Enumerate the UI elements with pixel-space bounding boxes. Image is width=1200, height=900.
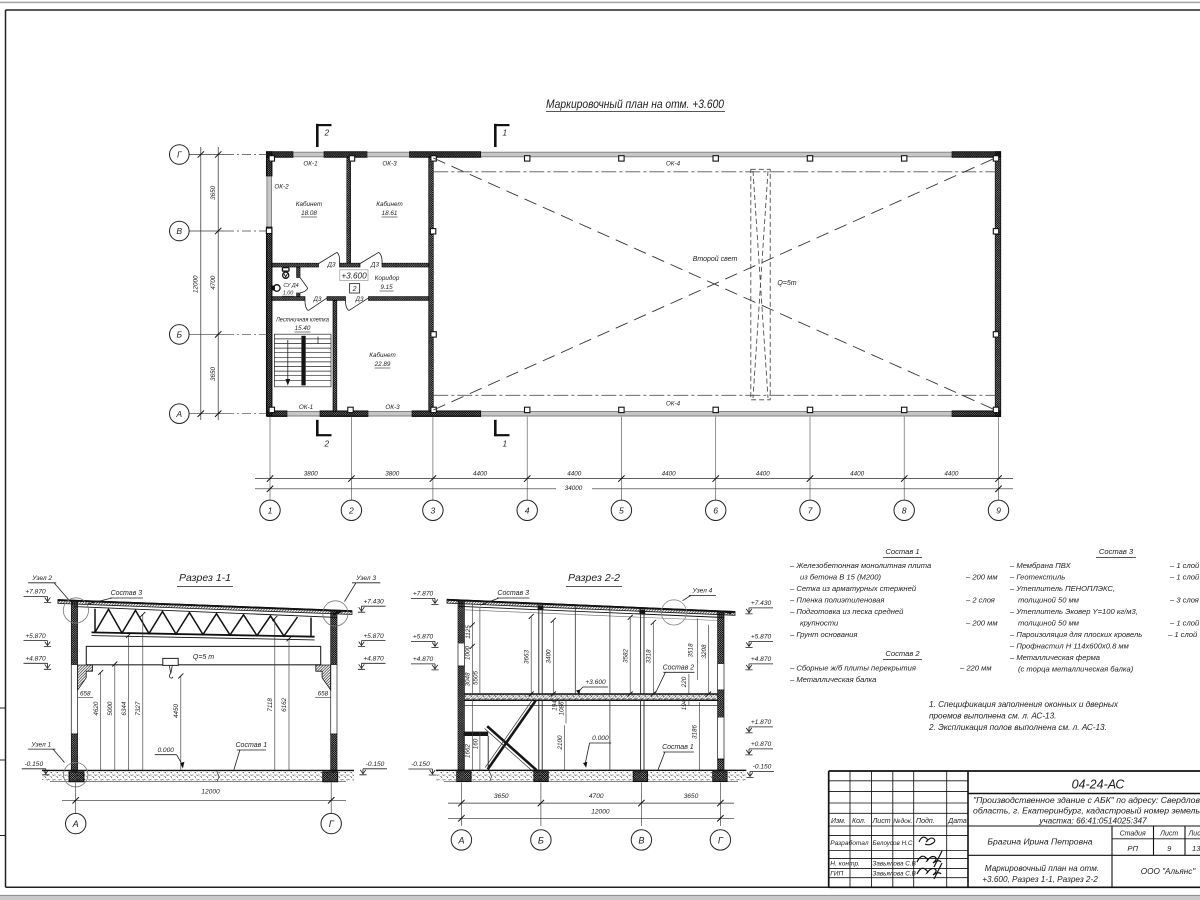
svg-text:Второй свет: Второй свет (693, 255, 738, 263)
svg-text:12000: 12000 (192, 275, 199, 293)
svg-text:ОК-1: ОК-1 (303, 161, 317, 168)
svg-text:– Железобетонная монолитная п: – Железобетонная монолитная плита (789, 561, 931, 570)
svg-text:Д3: Д3 (370, 261, 379, 268)
svg-text:194: 194 (681, 699, 688, 710)
svg-text:1.00: 1.00 (283, 291, 294, 297)
svg-text:– 2 слоя: – 2 слоя (965, 596, 995, 605)
svg-text:Д3: Д3 (313, 296, 322, 303)
svg-text:2100: 2100 (557, 735, 564, 751)
svg-text:СУ Д4: СУ Д4 (283, 283, 298, 289)
svg-text:– Мембрана ПВХ: – Мембрана ПВХ (1009, 561, 1072, 570)
svg-text:1662: 1662 (464, 744, 471, 759)
svg-text:5000: 5000 (107, 701, 114, 716)
svg-text:Изм.: Изм. (831, 818, 846, 825)
svg-text:2. Экспликация полов выполнена: 2. Экспликация полов выполнена см. л. АС… (928, 723, 1107, 732)
svg-text:– Сетка из арматурных стержней: – Сетка из арматурных стержней (789, 584, 917, 593)
svg-text:Подп.: Подп. (916, 817, 935, 825)
svg-text:проемов выполнена см. л. АС-13: проемов выполнена см. л. АС-13. (929, 712, 1056, 721)
svg-text:0.000: 0.000 (592, 735, 609, 742)
svg-text:– Утеплитель Эковер Y=100 кг/м: – Утеплитель Эковер Y=100 кг/м3, (1009, 607, 1138, 616)
svg-text:3: 3 (431, 506, 436, 516)
svg-text:– Сборные ж/б плиты перекрытия: – Сборные ж/б плиты перекрытия (789, 664, 916, 673)
svg-text:(с торца металлическая балка): (с торца металлическая балка) (1018, 665, 1134, 674)
svg-text:6: 6 (713, 506, 718, 516)
svg-text:– 1 слой: – 1 слой (1169, 573, 1200, 582)
svg-text:2: 2 (324, 129, 330, 138)
svg-text:2: 2 (324, 440, 330, 449)
svg-text:– 1 слой: – 1 слой (1169, 561, 1200, 570)
svg-text:Лист: Лист (872, 818, 891, 825)
svg-text:ГИП: ГИП (830, 870, 843, 877)
svg-text:+5.870: +5.870 (25, 633, 46, 640)
svg-text:3800: 3800 (304, 471, 319, 478)
svg-text:2: 2 (352, 286, 357, 293)
svg-text:5505: 5505 (473, 671, 480, 686)
svg-text:+4.870: +4.870 (751, 656, 772, 663)
svg-text:Кол.: Кол. (852, 818, 866, 825)
svg-text:В: В (638, 835, 644, 845)
svg-text:"Производственное здание с АБК: "Производственное здание с АБК" по адрес… (973, 796, 1200, 805)
svg-text:ОК-4: ОК-4 (666, 400, 681, 407)
svg-text:Состав 1: Состав 1 (662, 744, 694, 751)
svg-text:Н. контр.: Н. контр. (830, 861, 860, 868)
svg-text:Маркировочный план на отм.: Маркировочный план на отм. (985, 864, 1099, 873)
svg-text:4620: 4620 (93, 701, 100, 716)
svg-text:1000: 1000 (464, 646, 471, 661)
svg-text:Завьялова С.В: Завьялова С.В (873, 861, 916, 868)
svg-text:13: 13 (1192, 844, 1200, 853)
svg-text:1125: 1125 (465, 625, 472, 639)
svg-text:Состав 3: Состав 3 (1099, 547, 1134, 556)
svg-text:9.15: 9.15 (380, 284, 393, 291)
svg-text:Завьялова С.В: Завьялова С.В (873, 870, 916, 877)
svg-text:15.40: 15.40 (295, 325, 311, 332)
svg-text:Состав 2: Состав 2 (663, 664, 695, 671)
svg-text:+3.600: +3.600 (341, 272, 367, 281)
svg-text:160: 160 (473, 738, 480, 749)
svg-text:Кабинет: Кабинет (376, 200, 402, 208)
svg-text:Кабинет: Кабинет (296, 200, 322, 208)
svg-text:1: 1 (503, 129, 508, 138)
svg-text:04-24-АС: 04-24-АС (1072, 778, 1126, 792)
svg-text:Узел 3: Узел 3 (355, 575, 376, 582)
svg-text:Q=5m: Q=5m (777, 280, 796, 287)
svg-text:6344: 6344 (121, 701, 128, 716)
svg-text:Брагина Ирина Петровна: Брагина Ирина Петровна (987, 837, 1092, 847)
svg-text:4400: 4400 (473, 471, 488, 478)
svg-text:3518: 3518 (688, 643, 695, 658)
svg-text:Состав 2: Состав 2 (885, 649, 920, 658)
svg-text:8: 8 (902, 506, 907, 516)
svg-text:1. Спецификация заполнения око: 1. Спецификация заполнения оконных и две… (929, 700, 1119, 709)
svg-text:4400: 4400 (944, 471, 959, 478)
svg-text:Состав 3: Состав 3 (111, 590, 143, 597)
svg-text:+3.600: +3.600 (585, 679, 606, 686)
svg-text:9: 9 (996, 506, 1001, 516)
svg-text:№док.: №док. (893, 817, 913, 825)
svg-text:658: 658 (318, 690, 329, 697)
svg-text:Узел 1: Узел 1 (30, 741, 51, 748)
svg-text:3318: 3318 (646, 649, 653, 664)
svg-text:Лист: Лист (1159, 831, 1178, 838)
svg-text:3650: 3650 (684, 793, 699, 800)
svg-text:-0.150: -0.150 (411, 761, 430, 768)
svg-text:1: 1 (268, 506, 273, 516)
svg-text:3663: 3663 (523, 650, 530, 665)
svg-text:6162: 6162 (281, 697, 288, 712)
svg-text:РП: РП (1127, 844, 1138, 853)
svg-text:+1.870: +1.870 (751, 719, 772, 726)
svg-text:Стадия: Стадия (1120, 830, 1146, 838)
svg-text:3048: 3048 (464, 672, 471, 687)
svg-text:А: А (175, 409, 182, 419)
svg-text:– Профнастил Н 114х600х0.8 мм: – Профнастил Н 114х600х0.8 мм (1009, 642, 1130, 651)
svg-text:194: 194 (551, 700, 558, 711)
svg-text:А: А (72, 819, 79, 829)
svg-text:крупности: крупности (800, 619, 839, 628)
svg-text:18.08: 18.08 (301, 210, 317, 217)
svg-text:4400: 4400 (662, 471, 677, 478)
svg-text:+4.870: +4.870 (413, 656, 434, 663)
svg-text:-0.150: -0.150 (24, 761, 43, 768)
svg-text:Лис: Лис (1188, 831, 1200, 838)
svg-text:0.000: 0.000 (157, 747, 174, 754)
svg-text:– 1 слой: – 1 слой (1167, 630, 1198, 639)
svg-text:Белоусов Н.С: Белоусов Н.С (873, 840, 913, 847)
svg-text:3208: 3208 (701, 644, 708, 659)
svg-text:+3.600, Разрез 1-1, Разрез 2-2: +3.600, Разрез 1-1, Разрез 2-2 (982, 875, 1098, 884)
svg-text:ООО "Альянс": ООО "Альянс" (1141, 867, 1197, 876)
svg-text:3650: 3650 (210, 367, 217, 382)
svg-text:4700: 4700 (210, 275, 217, 290)
svg-text:Д3: Д3 (327, 261, 336, 268)
svg-text:– 3 слоя: – 3 слоя (1169, 596, 1199, 605)
svg-text:ОК-4: ОК-4 (666, 161, 681, 168)
svg-text:12000: 12000 (201, 788, 220, 795)
svg-text:+5.870: +5.870 (751, 634, 772, 641)
svg-text:4400: 4400 (567, 471, 582, 478)
svg-text:ОК-3: ОК-3 (382, 161, 397, 168)
svg-text:-0.150: -0.150 (753, 764, 772, 771)
svg-text:область, г. Екатеринбург, када: область, г. Екатеринбург, кадастровый но… (973, 806, 1200, 815)
svg-text:– Грунт основания: – Грунт основания (789, 630, 857, 639)
svg-text:12000: 12000 (591, 808, 610, 815)
svg-text:Коридор: Коридор (375, 274, 400, 282)
svg-text:2: 2 (348, 506, 354, 516)
svg-text:– Металлическая балка: – Металлическая балка (789, 675, 876, 684)
svg-text:Разрез 1-1: Разрез 1-1 (179, 572, 231, 584)
svg-text:1086: 1086 (559, 701, 566, 716)
svg-text:Состав 3: Состав 3 (497, 590, 529, 597)
svg-text:Лестничная клетка: Лестничная клетка (275, 317, 329, 324)
svg-text:4: 4 (525, 506, 530, 516)
svg-text:из бетона В 15 (М200): из бетона В 15 (М200) (800, 573, 882, 582)
svg-text:7327: 7327 (135, 701, 142, 716)
svg-text:Кабинет: Кабинет (369, 351, 395, 359)
svg-text:– Металлическая ферма: – Металлическая ферма (1009, 653, 1100, 662)
svg-text:– 1 слой: – 1 слой (1169, 619, 1200, 628)
svg-text:+7.430: +7.430 (751, 600, 772, 607)
svg-text:+0.870: +0.870 (751, 741, 772, 748)
svg-text:+7.430: +7.430 (363, 598, 384, 605)
svg-text:+4.870: +4.870 (25, 656, 46, 663)
svg-text:220: 220 (681, 676, 688, 688)
svg-text:+5.870: +5.870 (363, 633, 384, 640)
svg-text:– 200 мм: – 200 мм (965, 619, 998, 628)
svg-text:ОК-2: ОК-2 (274, 184, 289, 191)
svg-text:ОК-1: ОК-1 (299, 404, 313, 411)
svg-text:– Утеплитель ПЕНОПЛЭКС,: – Утеплитель ПЕНОПЛЭКС, (1009, 584, 1115, 593)
svg-text:– 220 мм: – 220 мм (959, 664, 992, 673)
svg-text:Q=5 m: Q=5 m (193, 654, 214, 661)
svg-text:Д3: Д3 (355, 296, 364, 303)
svg-text:+7.870: +7.870 (25, 589, 46, 596)
svg-text:4400: 4400 (756, 471, 771, 478)
svg-text:3582: 3582 (622, 649, 629, 664)
svg-text:+5.870: +5.870 (413, 634, 434, 641)
svg-text:А: А (457, 835, 464, 845)
svg-text:3400: 3400 (546, 649, 553, 664)
svg-text:3800: 3800 (385, 471, 400, 478)
svg-text:толщиной 50 мм: толщиной 50 мм (1018, 619, 1080, 628)
svg-text:Б: Б (538, 835, 544, 845)
svg-text:– Подготовка из песка средней: – Подготовка из песка средней (789, 607, 904, 616)
svg-text:Б: Б (177, 330, 183, 340)
svg-text:4400: 4400 (850, 471, 865, 478)
svg-text:4700: 4700 (589, 793, 604, 800)
svg-text:Состав 1: Состав 1 (236, 742, 268, 749)
svg-text:3650: 3650 (494, 793, 509, 800)
svg-text:участка: 66:41:0514025:347: участка: 66:41:0514025:347 (1038, 816, 1147, 825)
svg-text:4450: 4450 (173, 704, 180, 719)
svg-text:1: 1 (503, 440, 508, 449)
svg-text:5: 5 (619, 506, 624, 516)
svg-text:– Геотекстиль: – Геотекстиль (1009, 573, 1065, 582)
svg-text:+7.870: +7.870 (413, 591, 434, 598)
svg-text:22.89: 22.89 (374, 361, 391, 368)
svg-text:+4.870: +4.870 (363, 656, 384, 663)
svg-text:658: 658 (80, 690, 91, 697)
svg-text:Состав 1: Состав 1 (885, 547, 919, 556)
svg-text:-0.150: -0.150 (366, 761, 385, 768)
svg-text:Разработал: Разработал (830, 839, 869, 847)
svg-text:ОК-3: ОК-3 (385, 404, 400, 411)
svg-text:– Пленка полиэтиленовая: – Пленка полиэтиленовая (789, 596, 884, 605)
svg-text:Узел 4: Узел 4 (691, 588, 712, 595)
svg-text:Маркировочный план на отм. +3.: Маркировочный план на отм. +3.600 (546, 99, 725, 111)
svg-text:3650: 3650 (210, 185, 217, 200)
svg-text:34000: 34000 (565, 485, 583, 492)
svg-text:Дата: Дата (947, 818, 967, 825)
svg-text:7118: 7118 (267, 698, 274, 712)
svg-text:В: В (176, 226, 182, 236)
svg-text:3186: 3186 (692, 725, 699, 740)
svg-text:– 200 мм: – 200 мм (965, 573, 998, 582)
svg-text:Разрез 2-2: Разрез 2-2 (568, 572, 620, 584)
svg-text:толщиной 50 мм: толщиной 50 мм (1018, 596, 1080, 605)
svg-text:– Пароизоляция для плоских кро: – Пароизоляция для плоских кровель (1009, 630, 1142, 639)
svg-text:Узел 2: Узел 2 (31, 575, 52, 582)
svg-text:18.61: 18.61 (382, 210, 398, 217)
